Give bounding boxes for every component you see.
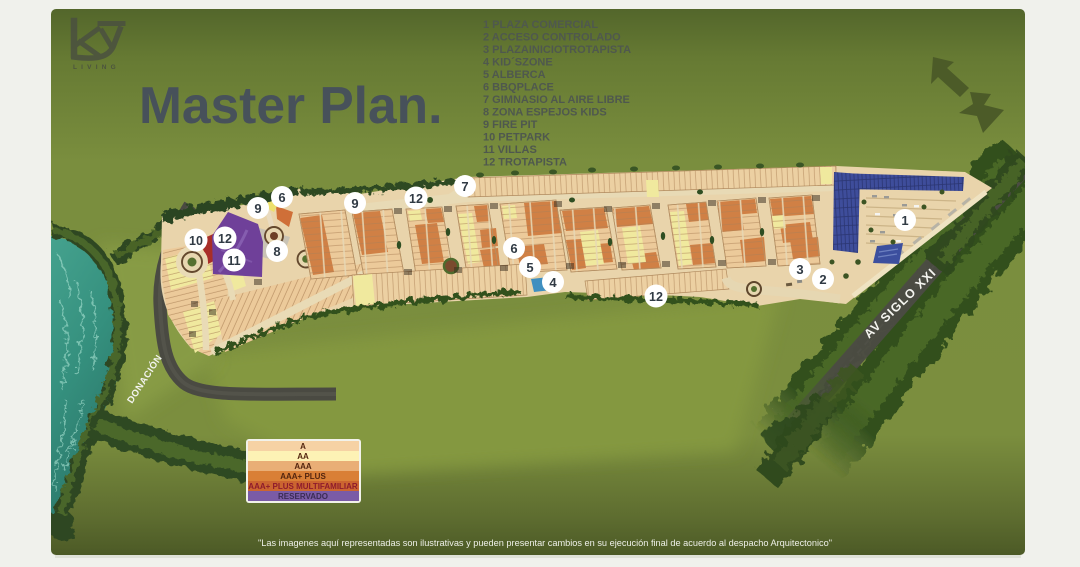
svg-text:10 PETPARK: 10 PETPARK — [483, 132, 550, 144]
svg-text:LIVING: LIVING — [73, 64, 120, 71]
svg-text:12: 12 — [649, 290, 663, 304]
svg-text:5: 5 — [526, 260, 533, 275]
svg-text:RESERVADO: RESERVADO — [278, 492, 328, 501]
svg-text:11: 11 — [227, 254, 240, 268]
svg-text:6 BBQPLACE: 6 BBQPLACE — [483, 82, 554, 94]
svg-text:12: 12 — [409, 192, 423, 206]
svg-text:12: 12 — [218, 232, 232, 246]
svg-text:AAA+ PLUS MULTIFAMILIAR: AAA+ PLUS MULTIFAMILIAR — [248, 482, 358, 491]
svg-text:12 TROTAPISTA: 12 TROTAPISTA — [483, 157, 567, 169]
svg-text:4 KID´SZONE: 4 KID´SZONE — [483, 57, 553, 69]
svg-text:9: 9 — [351, 196, 358, 211]
svg-text:3 PLAZAINICIOTROTAPISTA: 3 PLAZAINICIOTROTAPISTA — [483, 44, 631, 56]
svg-text:11 VILLAS: 11 VILLAS — [483, 144, 537, 156]
svg-text:6: 6 — [510, 241, 517, 256]
svg-text:5 ALBERCA: 5 ALBERCA — [483, 69, 546, 81]
svg-text:Master Plan.: Master Plan. — [139, 76, 442, 134]
svg-text:"Las imagenes aquí representad: "Las imagenes aquí representadas son ilu… — [258, 538, 832, 548]
svg-text:4: 4 — [549, 275, 557, 290]
svg-text:9: 9 — [254, 201, 261, 216]
svg-text:1: 1 — [901, 213, 908, 228]
svg-text:9 FIRE PIT: 9 FIRE PIT — [483, 119, 538, 131]
svg-text:7: 7 — [461, 179, 468, 194]
svg-text:3: 3 — [796, 262, 803, 277]
svg-text:2: 2 — [819, 272, 826, 287]
svg-text:8: 8 — [273, 244, 280, 259]
svg-text:7 GIMNASIO AL AIRE LIBRE: 7 GIMNASIO AL AIRE LIBRE — [483, 94, 630, 106]
svg-text:AA: AA — [297, 452, 309, 461]
svg-text:8 ZONA ESPEJOS KIDS: 8 ZONA ESPEJOS KIDS — [483, 107, 607, 119]
svg-text:2 ACCESO CONTROLADO: 2 ACCESO CONTROLADO — [483, 32, 621, 44]
svg-text:6: 6 — [278, 190, 285, 205]
svg-text:10: 10 — [189, 234, 203, 248]
svg-text:AAA: AAA — [294, 462, 312, 471]
svg-text:1 PLAZA COMERCIAL: 1 PLAZA COMERCIAL — [483, 19, 598, 31]
svg-text:AAA+ PLUS: AAA+ PLUS — [280, 472, 326, 481]
svg-text:A: A — [300, 442, 306, 451]
